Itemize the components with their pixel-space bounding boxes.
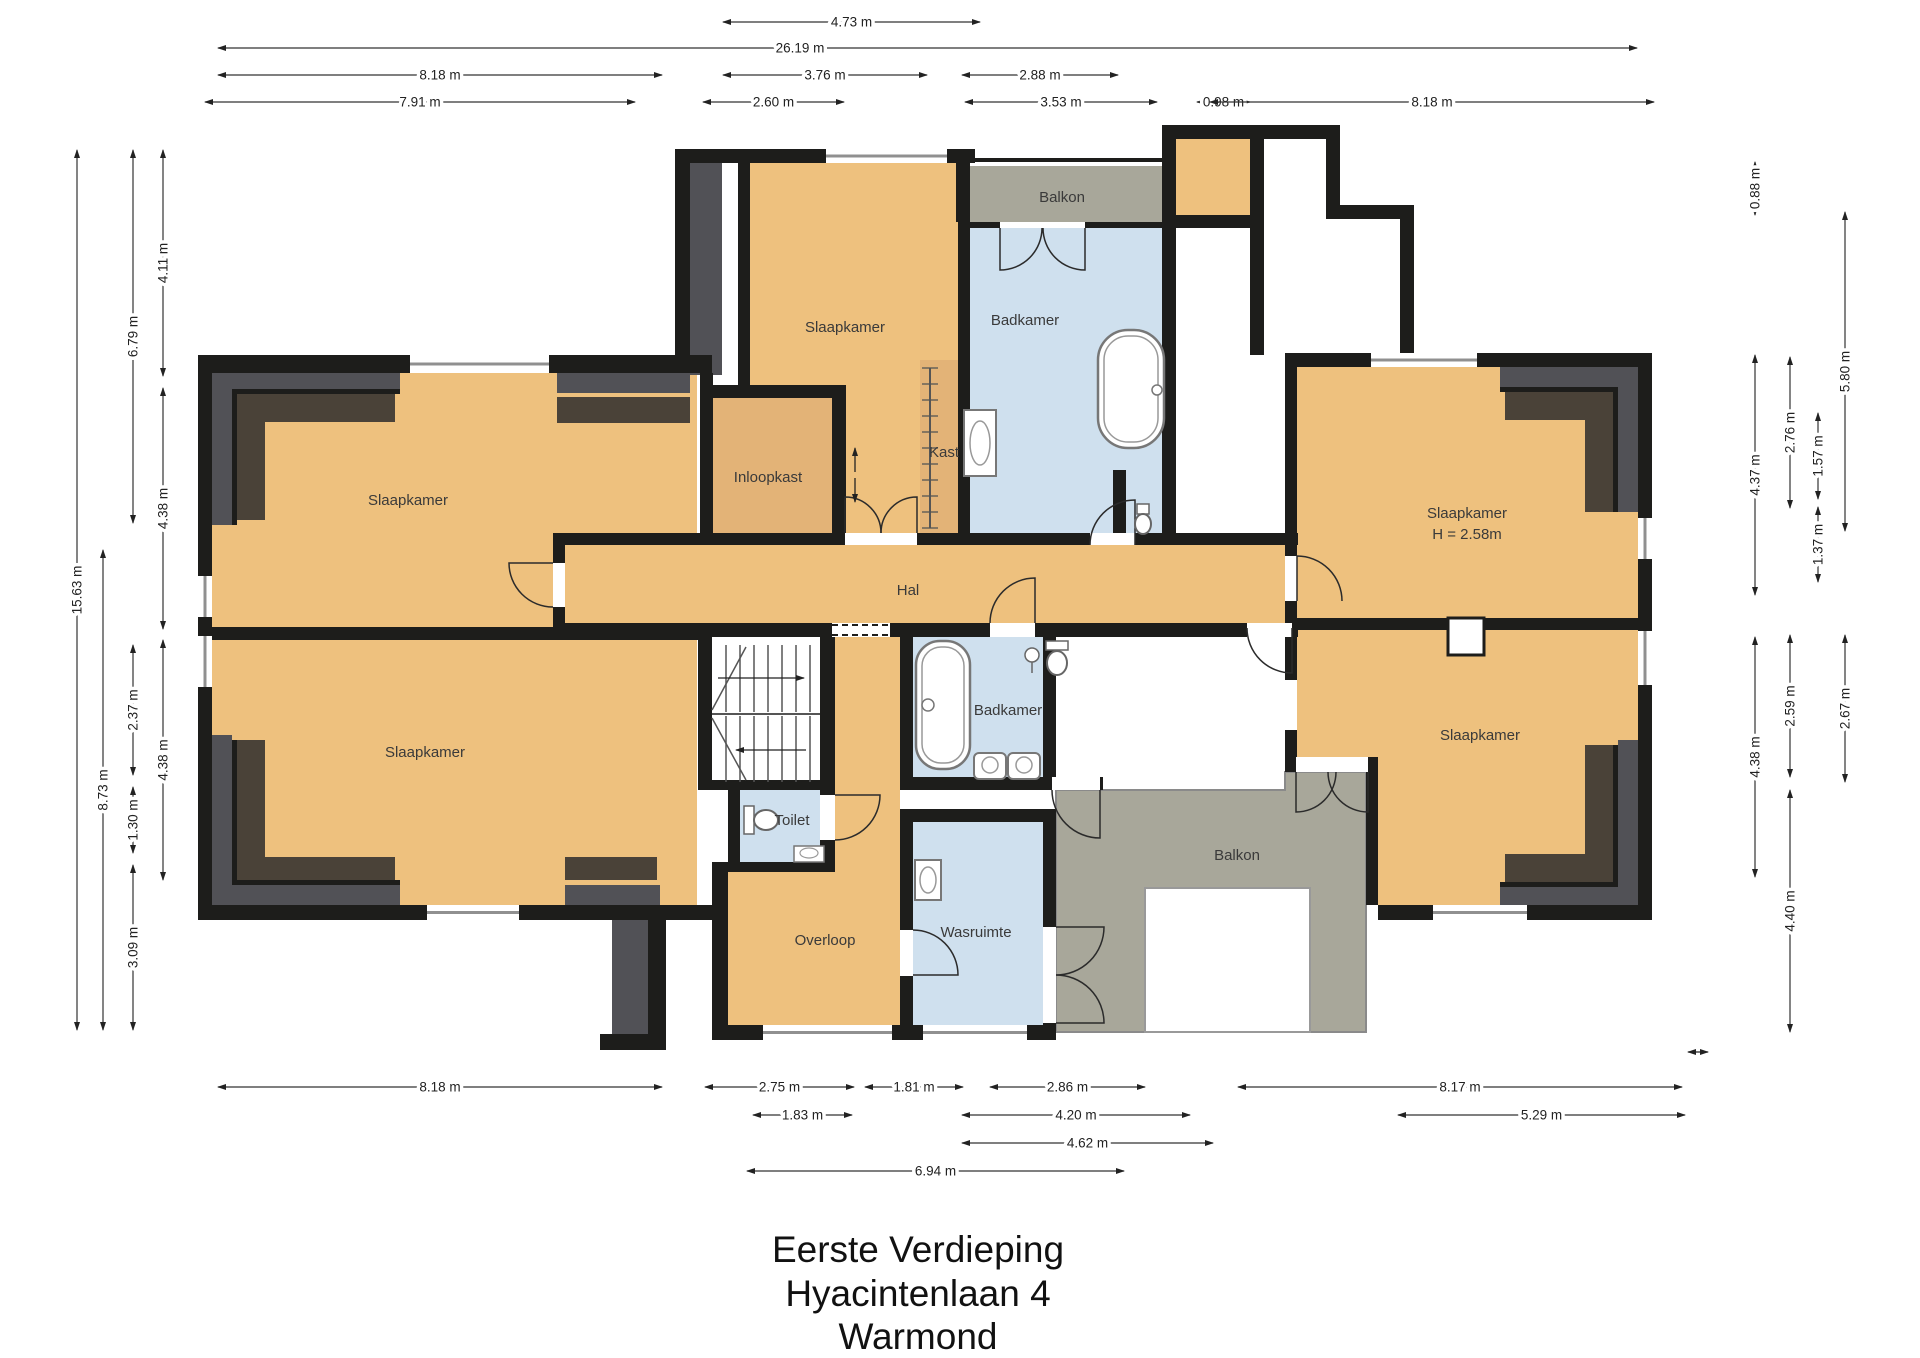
win-rightwing-right-2-cap [1638, 685, 1652, 688]
dim-v-label: 4.40 m [1783, 890, 1798, 931]
wall-badkamer-top-east [1162, 125, 1176, 545]
label-hal: Hal [897, 582, 920, 599]
win-rightwing-top-cap [1477, 353, 1480, 367]
dim-v-label: 4.38 m [156, 488, 171, 529]
dim-v-label: 8.73 m [96, 769, 111, 810]
label-wasruimte: Wasruimte [940, 924, 1011, 941]
toilet-badkamer-top-bowl [1135, 514, 1151, 534]
wall-inloopkast-left [700, 373, 713, 545]
wall-step2-top [1262, 125, 1340, 139]
rail-balkon-top-left [956, 158, 960, 222]
opening-hal-bedroom [845, 533, 917, 545]
win-rightwing-bottom-cap [1527, 905, 1530, 920]
win-wasruimte-bottom-cap [920, 1025, 923, 1040]
dim-h-label: 5.29 m [1521, 1108, 1562, 1123]
dim-v-label: 4.38 m [1748, 736, 1763, 777]
dim-h-label: 2.86 m [1047, 1080, 1088, 1095]
wall-toilet-left [728, 790, 740, 862]
wall-alcove-east [1250, 125, 1264, 355]
opening-hal-corridor-dashed [832, 623, 890, 637]
wall-hal-top [553, 533, 1298, 545]
toilet-badkamer-top-tank [1137, 504, 1149, 514]
dim-h-label: 2.60 m [753, 95, 794, 110]
band-brown-bottomwall-mid [565, 857, 657, 880]
wall-overloop-left [712, 862, 728, 1025]
dim-v-label: 2.37 m [126, 689, 141, 730]
wall-badkamer2-west [900, 637, 913, 777]
band-grey-topwall-mid [557, 373, 690, 393]
win-overloop-bottom-cap [892, 1025, 895, 1040]
win-bedroom-top-cap [823, 149, 826, 163]
dim-v-label: 1.37 m [1811, 524, 1826, 565]
band-grey-centerstep [690, 163, 722, 375]
opening-toilet-door [820, 795, 835, 840]
label-kast: Kast [929, 444, 960, 461]
stair-diag-down [712, 718, 746, 780]
label-badkamer-bottom: Badkamer [974, 702, 1042, 719]
dim-v-label: 4.37 m [1748, 454, 1763, 495]
label-slaapkamer-topmid: Slaapkamer [805, 319, 885, 336]
title-block: Eerste Verdieping Hyacintenlaan 4 Warmon… [772, 1228, 1064, 1358]
bathtub-top-tap [1152, 385, 1162, 395]
wall-stair-toilet-divider [698, 780, 835, 790]
band-brown-topwall-mid [557, 397, 690, 423]
chimney-grey [612, 918, 648, 1034]
band-grey-bottomwall-mid [565, 885, 660, 905]
dim-v-label: 0.88 m [1748, 168, 1763, 209]
win-leftwing-bottom-cap [519, 905, 522, 920]
sink-wc-basin [800, 848, 818, 858]
label-slaapkamer-bottomright: Slaapkamer [1440, 727, 1520, 744]
dim-h-label: 4.20 m [1055, 1108, 1096, 1123]
band-black-bottomright-b [1613, 745, 1618, 887]
dim-h-label: 6.94 m [915, 1164, 956, 1179]
wall-step2-mid [1326, 205, 1414, 219]
wall-duct-south [900, 809, 1056, 822]
dim-v-label: 2.76 m [1783, 412, 1798, 453]
opening-hal-tr-room [1285, 556, 1297, 601]
floorplan-page: 4.73 m26.19 m8.18 m3.76 m2.88 m7.91 m2.6… [0, 0, 1920, 1358]
title-floor: Eerste Verdieping [772, 1228, 1064, 1272]
toilet-badkamer2-bowl [1047, 651, 1067, 675]
dim-h-label: 4.73 m [831, 15, 872, 30]
dim-h-label: 8.18 m [1411, 95, 1452, 110]
alcove-topright [1176, 139, 1250, 215]
sink-badkamer-top-basin [970, 421, 990, 465]
toilet-badkamer2-tank [1046, 641, 1068, 650]
label-slaapkamer-topright: Slaapkamer [1427, 505, 1507, 522]
label-badkamer-top: Badkamer [991, 312, 1059, 329]
dim-h-label: 7.91 m [399, 95, 440, 110]
band-black-topleft-b [232, 394, 237, 525]
win-rightwing-bottom-cap [1430, 905, 1433, 920]
win-left-2-cap [198, 633, 212, 636]
shower-badkamer2 [1025, 648, 1039, 662]
opening-wasruimte-balkon [1043, 927, 1056, 1023]
wall-inloopkast-right [832, 398, 846, 545]
dim-v-label: 5.80 m [1838, 351, 1853, 392]
label-slaapkamer-topright-h: H = 2.58m [1432, 526, 1502, 543]
room-hal [563, 545, 1285, 623]
opening-badkamer2-balkon [1052, 777, 1100, 790]
wall-wasruimte-west [900, 822, 913, 1025]
label-slaapkamer-bottomleft: Slaapkamer [385, 744, 465, 761]
sink-wasruimte-basin [920, 867, 936, 893]
dim-v-label: 15.63 m [70, 566, 85, 615]
win-rightwing-right-1-cap [1638, 515, 1652, 518]
label-balkon-bottom: Balkon [1214, 847, 1260, 864]
band-black-bottomright-a [1500, 882, 1618, 887]
opening-balkontop-badkamer [1000, 222, 1085, 228]
bathtub-bottom-tap [922, 699, 934, 711]
dim-h-label: 26.19 m [776, 41, 825, 56]
band-black-bottomleft-a [232, 880, 400, 885]
label-inloopkast: Inloopkast [734, 469, 803, 486]
sink-badkamer2-b-basin [1016, 757, 1032, 773]
corridor-overloop-north [835, 637, 900, 868]
label-overloop: Overloop [795, 932, 856, 949]
band-black-topleft-a [232, 389, 400, 394]
niche-rightwing [1448, 618, 1484, 655]
balkon-bottom-cutout [1145, 888, 1310, 1032]
opening-hal-badkamer-top [1090, 533, 1135, 545]
sink-badkamer2-a-basin [982, 757, 998, 773]
label-toilet: Toilet [774, 812, 810, 829]
dim-h-label: 4.62 m [1067, 1136, 1108, 1151]
floorplan-drawing: 4.73 m26.19 m8.18 m3.76 m2.88 m7.91 m2.6… [0, 0, 1920, 1358]
band-black-bottomleft-b [232, 740, 237, 880]
dim-v-label: 2.67 m [1838, 688, 1853, 729]
wall-center-step-vert [675, 149, 690, 373]
chimney-wall-cap [600, 1034, 666, 1050]
wall-inloopkast-top [700, 385, 846, 398]
label-balkon-top: Balkon [1039, 189, 1085, 206]
dim-h-label: 1.81 m [893, 1080, 934, 1095]
win-leftwing-top-cap [549, 355, 552, 373]
dim-v-label: 3.09 m [126, 927, 141, 968]
dim-h-label: 2.75 m [759, 1080, 800, 1095]
dim-v-label: 4.38 m [156, 739, 171, 780]
opening-hal-badkamer2 [990, 623, 1035, 637]
win-left-1-cap [198, 617, 212, 620]
win-left-1-cap [198, 573, 212, 576]
dim-v-label: 6.79 m [126, 316, 141, 357]
dim-h-label: 8.18 m [419, 1080, 460, 1095]
win-bedroom-top-cap [947, 149, 950, 163]
title-city: Warmond [772, 1315, 1064, 1358]
dim-h-label: 3.53 m [1040, 95, 1081, 110]
win-left-2-cap [198, 687, 212, 690]
band-black-topright-a [1500, 387, 1618, 392]
label-slaapkamer-topleft: Slaapkamer [368, 492, 448, 509]
layer-stairs [712, 645, 820, 782]
opening-br-balkon [1296, 757, 1368, 772]
toilet-wc-tank [744, 806, 754, 834]
dim-h-label: 3.76 m [804, 68, 845, 83]
win-leftwing-bottom-cap [424, 905, 427, 920]
wall-stairwell-left [698, 627, 712, 790]
win-wasruimte-bottom-cap [1027, 1025, 1030, 1040]
chimney-wall-vert [648, 905, 666, 1050]
wall-hal-bottom [553, 623, 1298, 637]
dim-v-label: 1.30 m [126, 799, 141, 840]
dim-h-label: 1.83 m [782, 1108, 823, 1123]
wall-alcove-top [1166, 125, 1262, 139]
win-rightwing-right-1-cap [1638, 559, 1652, 562]
opening-hal-west-door [553, 563, 565, 607]
wall-step2-vert2 [1400, 219, 1414, 367]
wall-bedroom-left [738, 163, 750, 398]
opening-hal-corner [1247, 623, 1292, 637]
dim-h-label: 8.18 m [419, 68, 460, 83]
win-overloop-bottom-cap [760, 1025, 763, 1040]
wall-alcove-bottom [1176, 215, 1262, 228]
dim-v-label: 1.57 m [1811, 435, 1826, 476]
dim-h-label: 2.88 m [1019, 68, 1060, 83]
band-black-topright-b [1613, 387, 1618, 512]
opening-wasruimte-door [900, 930, 913, 976]
win-leftwing-top-cap [407, 355, 410, 373]
wall-toilet-bottom [728, 862, 835, 872]
dim-v-label: 2.59 m [1783, 685, 1798, 726]
title-address: Hyacintenlaan 4 [772, 1272, 1064, 1316]
dim-h-label: 8.17 m [1439, 1080, 1480, 1095]
win-rightwing-top-cap [1368, 353, 1371, 367]
opening-corridor-br-room [1285, 680, 1297, 730]
rail-balkon-top-outer [956, 158, 1170, 162]
win-rightwing-right-2-cap [1638, 628, 1652, 631]
dim-v-label: 4.11 m [156, 243, 171, 283]
